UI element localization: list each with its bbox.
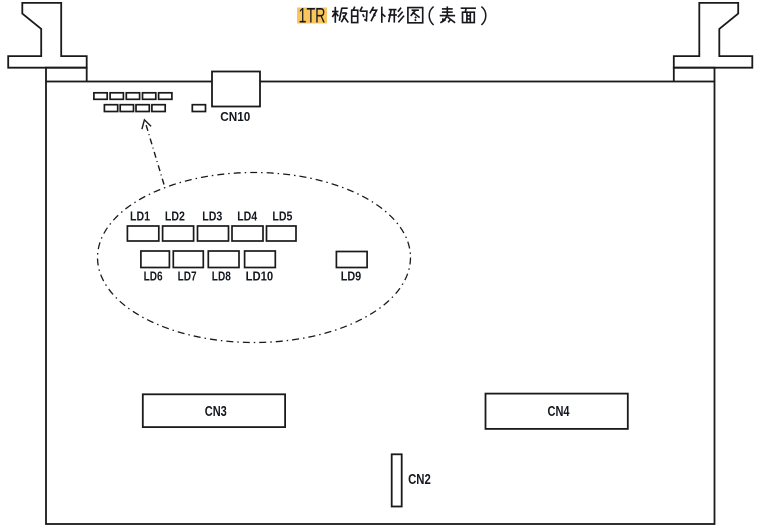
svg-text:LD10: LD10 [246,268,274,283]
svg-text:CN3: CN3 [205,403,227,420]
svg-text:CN10: CN10 [220,109,250,124]
svg-text:LD7: LD7 [178,268,197,283]
svg-text:LD9: LD9 [341,268,362,283]
svg-text:LD3: LD3 [202,208,222,223]
svg-text:1TR: 1TR [299,4,326,27]
svg-text:CN4: CN4 [548,403,570,420]
svg-text:LD1: LD1 [130,208,150,223]
svg-text:CN2: CN2 [408,471,431,488]
svg-text:LD5: LD5 [272,208,292,223]
svg-text:LD4: LD4 [237,208,258,223]
svg-text:LD8: LD8 [212,268,231,283]
svg-text:LD6: LD6 [144,268,163,283]
svg-text:LD2: LD2 [165,208,185,223]
